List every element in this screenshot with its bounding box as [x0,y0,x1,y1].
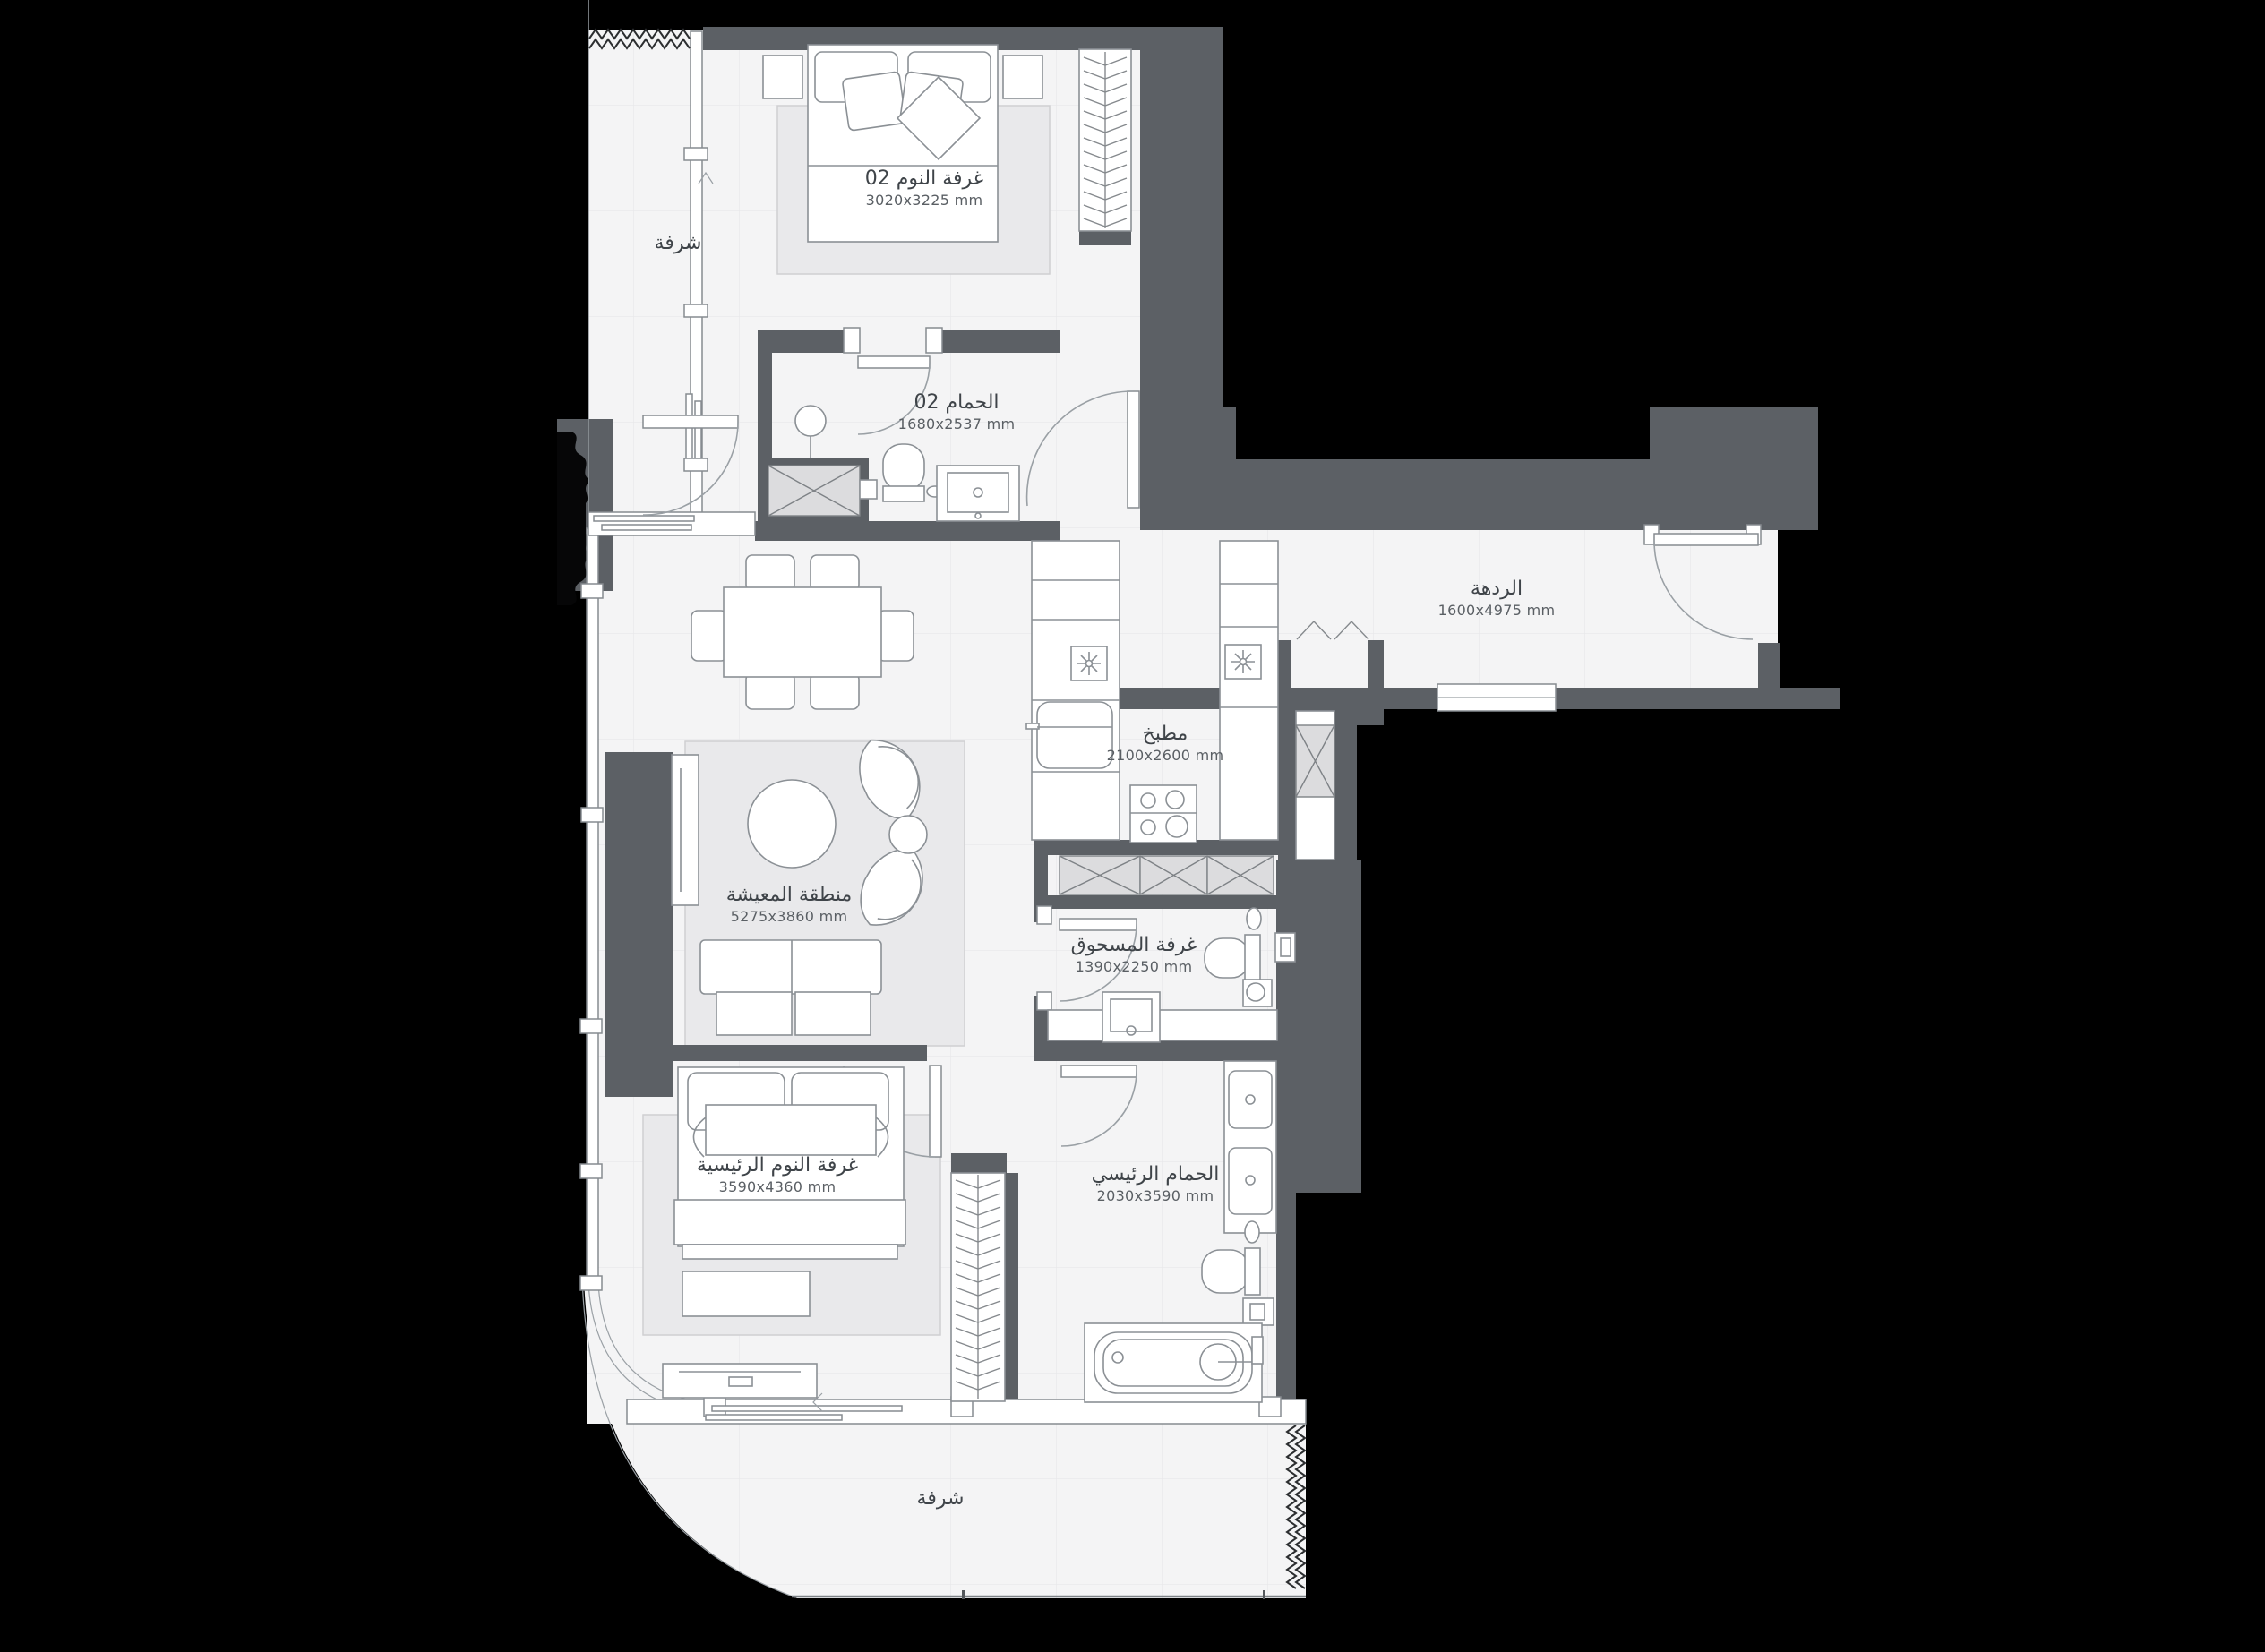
kitchen-counter-left [1032,541,1120,840]
flush-panel [1275,933,1295,962]
nightstand [1003,56,1042,98]
mullion [580,1276,602,1290]
room-name: شرفة [917,1486,965,1511]
toilet-bowl [1205,938,1249,978]
room-dims: 2030x3590 mm [1092,1187,1220,1205]
entry-door-leaf [1654,534,1758,545]
wall-wardrobe-m-right [1005,1173,1018,1404]
vanity-basin [1229,1148,1272,1214]
sliding-panel [712,1406,902,1411]
masterbed-door-leaf [930,1066,941,1157]
label-bedroom-02: غرفة النوم 02 3020x3225 mm [865,167,983,210]
stove [1130,785,1197,843]
toilet-bowl [883,444,924,491]
bench-shelf [682,1245,897,1259]
toilet-tank [1245,935,1260,981]
wall-bed02-bath02-a [758,330,858,353]
room-name: منطقة المعيشة [726,883,853,908]
label-balcony-top: شرفة [655,231,702,256]
tick [1263,1590,1265,1599]
wall-kitchen-right [1278,709,1296,861]
wall-shaft-right [1334,709,1357,861]
tv-stand [729,1377,752,1386]
pillow [842,72,905,131]
dining-chair [878,611,914,661]
mullion [580,1019,602,1033]
room-dims: 1390x2250 mm [1071,958,1197,976]
door-jamb [1037,906,1051,924]
room-name: غرفة المسحوق [1071,933,1197,958]
blanket-roll [706,1105,876,1155]
masterbath-door-leaf [1061,1066,1137,1077]
sprayer [1247,908,1261,929]
wall-wardrobe-m-cap [951,1153,1007,1173]
band-void [1236,407,1650,459]
room-name: شرفة [655,231,702,256]
coffee-table [748,780,836,868]
mullion [684,148,708,160]
balcony-door-leaf [643,415,738,428]
door-jamb [926,328,942,353]
mullion [581,808,603,822]
side-table [889,816,927,853]
room-dims: 5275x3860 mm [726,908,853,926]
toilet-bowl [1202,1250,1248,1293]
room-dims: 2100x2600 mm [1107,747,1224,765]
label-master-bedroom: غرفة النوم الرئيسية 3590x4360 mm [697,1153,858,1196]
room-dims: 3590x4360 mm [697,1178,858,1196]
wall-niche-left [1278,640,1291,709]
label-balcony-bottom: شرفة [917,1486,965,1511]
dining-chair [811,555,859,591]
fridge-handle [1026,723,1039,729]
toilet-tank [1245,1248,1260,1295]
label-kitchen: مطبخ 2100x2600 mm [1107,722,1224,765]
wall-xband-bottom [1034,895,1278,909]
toilet-tank [883,486,924,501]
powder-counter [1048,1010,1277,1040]
dining-chair [691,611,727,661]
sofa-cushion [795,992,871,1035]
room-dims: 1680x2537 mm [898,415,1016,433]
room-dims: 1600x4975 mm [1438,602,1556,620]
wall-living-left [605,752,673,1097]
label-bathroom-02: الحمام 02 1680x2537 mm [898,390,1016,433]
wall-masterbed-top [673,1045,927,1061]
bidet-sprayer [860,480,877,499]
cabinet-band [1060,856,1274,894]
kitchen-counter-right [1220,541,1278,840]
vestibule-door-leaf [1128,391,1139,508]
room-name: مطبخ [1107,722,1224,747]
label-living-area: منطقة المعيشة 5275x3860 mm [726,883,853,926]
vanity-basin [1229,1071,1272,1128]
wall-niche-right [1368,640,1384,709]
sliding-panel [594,516,694,521]
label-powder-room: غرفة المسحوق 1390x2250 mm [1071,933,1197,976]
sofa-cushion [716,992,792,1035]
bath02-door-leaf [858,356,930,368]
tv-console [672,755,699,905]
dining-chair [811,673,859,709]
room-dims: 3020x3225 mm [865,192,983,210]
wall-bath02-bottom [755,521,1060,541]
label-master-bathroom: الحمام الرئيسي 2030x3590 mm [1092,1162,1220,1205]
room-name: الحمام 02 [898,390,1016,415]
room-name: غرفة النوم 02 [865,167,983,192]
mullion [684,304,708,317]
sprayer [1245,1221,1259,1243]
dining-chair [746,673,794,709]
room-name: الردهة [1438,577,1556,602]
wall-masterbath-right [1276,1061,1296,1403]
dining-chair [746,555,794,591]
tub-handle [1252,1337,1263,1364]
ottoman [682,1271,810,1316]
floor-plan [0,0,2265,1652]
flush-box [1243,1298,1274,1325]
sliding-panel [602,525,691,530]
bed-bench [674,1200,905,1245]
basin-mirror [795,406,826,436]
mullion [580,1164,602,1178]
door-jamb [844,328,860,353]
mullion [581,584,603,598]
label-hallway: الردهة 1600x4975 mm [1438,577,1556,620]
wall-bedroom02-right [1140,27,1223,530]
wall-bed02-bath02-b [931,330,1060,353]
sliding-panel [706,1415,842,1420]
column-profile [557,432,588,605]
nightstand [763,56,802,98]
dining-table [724,587,881,677]
room-name: غرفة النوم الرئيسية [697,1153,858,1178]
tick [962,1590,965,1599]
powder-door-leaf [1060,919,1137,930]
room-name: الحمام الرئيسي [1092,1162,1220,1187]
mullion [684,458,708,471]
door-jamb [1037,992,1051,1010]
fridge [1037,702,1112,768]
wall-entry-stub [1758,643,1780,709]
wall-wardrobe02-cap [1079,231,1131,245]
sofa-back [700,940,881,994]
